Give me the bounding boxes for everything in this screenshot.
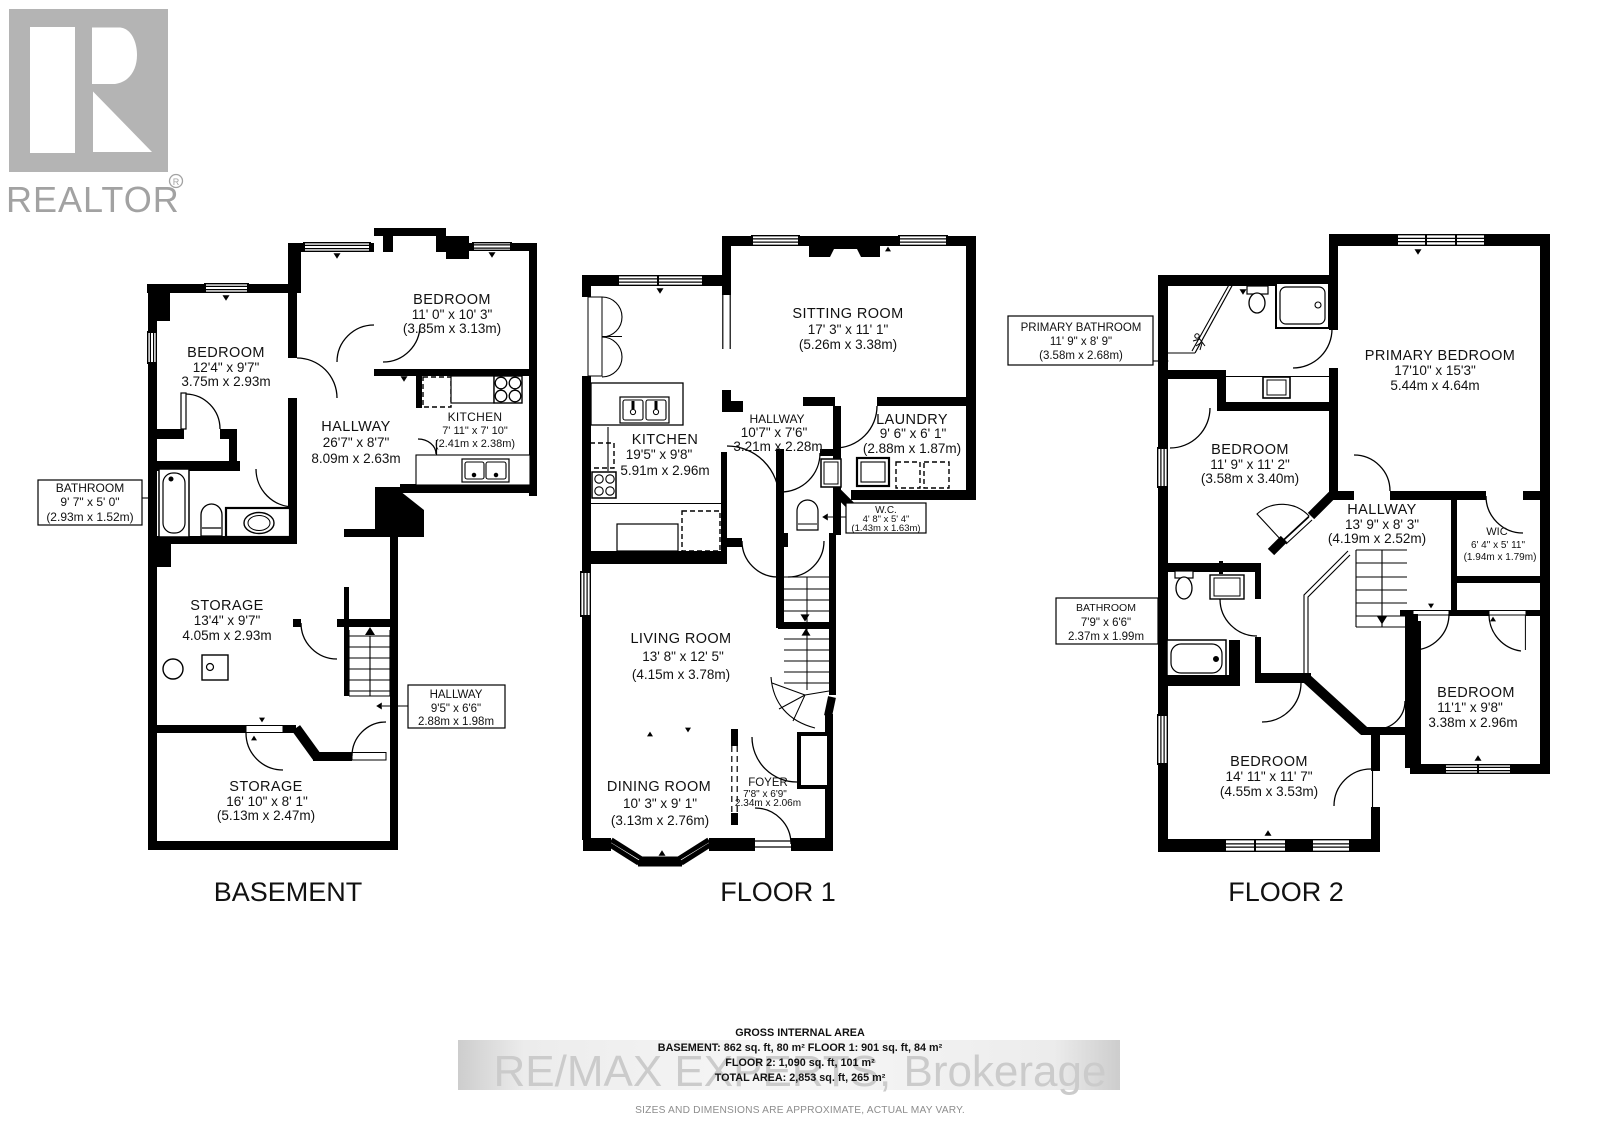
svg-text:FLOOR 2: 1,090 sq. ft, 101 m²: FLOOR 2: 1,090 sq. ft, 101 m² — [725, 1057, 875, 1069]
svg-text:HALLWAY: HALLWAY — [749, 412, 804, 426]
svg-text:11'1" x 9'8": 11'1" x 9'8" — [1437, 700, 1503, 715]
svg-text:(5.13m x 2.47m): (5.13m x 2.47m) — [217, 808, 315, 823]
svg-text:BATHROOM: BATHROOM — [1076, 602, 1136, 614]
svg-text:(3.35m x 3.13m): (3.35m x 3.13m) — [403, 321, 501, 336]
svg-text:SIZES AND DIMENSIONS ARE APPRO: SIZES AND DIMENSIONS ARE APPROXIMATE, AC… — [635, 1105, 965, 1116]
svg-text:2.88m x 1.98m: 2.88m x 1.98m — [418, 716, 494, 728]
svg-text:BEDROOM: BEDROOM — [1230, 754, 1308, 770]
svg-text:11' 9" x 8' 9": 11' 9" x 8' 9" — [1050, 336, 1112, 348]
svg-text:BASEMENT: 862 sq. ft, 80 m² FL: BASEMENT: 862 sq. ft, 80 m² FLOOR 1: 901… — [658, 1042, 943, 1054]
svg-text:PRIMARY BEDROOM: PRIMARY BEDROOM — [1365, 348, 1516, 364]
svg-text:10'7" x 7'6": 10'7" x 7'6" — [741, 425, 808, 440]
svg-text:(4.15m x 3.78m): (4.15m x 3.78m) — [632, 667, 730, 682]
svg-text:(1.43m x 1.63m): (1.43m x 1.63m) — [851, 523, 920, 534]
svg-text:14' 11" x 11' 7": 14' 11" x 11' 7" — [1225, 769, 1312, 784]
svg-text:FOYER: FOYER — [748, 777, 788, 789]
svg-text:STORAGE: STORAGE — [190, 598, 263, 614]
svg-text:16' 10" x 8' 1": 16' 10" x 8' 1" — [226, 794, 308, 809]
svg-text:HALLWAY: HALLWAY — [1347, 502, 1416, 518]
svg-text:FLOOR 2: FLOOR 2 — [1228, 877, 1344, 907]
svg-text:BEDROOM: BEDROOM — [413, 292, 491, 308]
svg-text:(2.93m x 1.52m): (2.93m x 1.52m) — [46, 510, 133, 524]
svg-text:9'5" x 6'6": 9'5" x 6'6" — [431, 703, 481, 715]
svg-text:3.38m x 2.96m: 3.38m x 2.96m — [1428, 715, 1517, 730]
svg-text:BEDROOM: BEDROOM — [1437, 685, 1515, 701]
svg-text:17'10" x 15'3": 17'10" x 15'3" — [1394, 363, 1476, 378]
svg-text:(2.88m x 1.87m): (2.88m x 1.87m) — [863, 441, 961, 456]
svg-text:7' 11" x 7' 10": 7' 11" x 7' 10" — [442, 425, 508, 437]
svg-text:11' 9" x 11' 2": 11' 9" x 11' 2" — [1210, 457, 1290, 472]
svg-text:12'4" x 9'7": 12'4" x 9'7" — [193, 360, 260, 375]
svg-text:KITCHEN: KITCHEN — [632, 432, 698, 448]
svg-text:7'9" x 6'6": 7'9" x 6'6" — [1081, 617, 1131, 629]
svg-text:BASEMENT: BASEMENT — [214, 877, 363, 907]
svg-text:17' 3" x 11' 1": 17' 3" x 11' 1" — [808, 322, 889, 337]
svg-text:19'5" x 9'8": 19'5" x 9'8" — [626, 447, 693, 462]
svg-text:R: R — [173, 177, 180, 187]
svg-text:(4.55m x 3.53m): (4.55m x 3.53m) — [1220, 784, 1318, 799]
svg-text:9' 6" x 6' 1": 9' 6" x 6' 1" — [880, 426, 947, 441]
svg-text:9' 7" x 5' 0": 9' 7" x 5' 0" — [60, 495, 119, 509]
svg-text:DINING ROOM: DINING ROOM — [607, 779, 711, 795]
svg-text:STORAGE: STORAGE — [229, 779, 302, 795]
svg-text:3.75m x 2.93m: 3.75m x 2.93m — [181, 374, 270, 389]
svg-text:13'4" x 9'7": 13'4" x 9'7" — [194, 613, 261, 628]
svg-text:TOTAL AREA: 2,853 sq. ft, 265: TOTAL AREA: 2,853 sq. ft, 265 m² — [715, 1072, 886, 1084]
svg-text:BATHROOM: BATHROOM — [56, 481, 124, 495]
svg-text:(3.58m x 3.40m): (3.58m x 3.40m) — [1201, 471, 1299, 486]
svg-text:(4.19m x 2.52m): (4.19m x 2.52m) — [1328, 531, 1426, 546]
svg-text:HALLWAY: HALLWAY — [321, 419, 390, 435]
svg-text:BEDROOM: BEDROOM — [187, 345, 265, 361]
svg-text:(5.26m x 3.38m): (5.26m x 3.38m) — [799, 337, 897, 352]
svg-text:BEDROOM: BEDROOM — [1211, 442, 1289, 458]
svg-text:6' 4" x 5' 11": 6' 4" x 5' 11" — [1471, 540, 1526, 551]
svg-text:(3.58m x 2.68m): (3.58m x 2.68m) — [1039, 350, 1123, 362]
svg-text:HALLWAY: HALLWAY — [430, 689, 483, 701]
svg-text:3.21m x 2.28m: 3.21m x 2.28m — [733, 439, 822, 454]
svg-text:FLOOR 1: FLOOR 1 — [720, 877, 836, 907]
svg-text:REALTOR: REALTOR — [6, 179, 180, 220]
svg-text:5.91m x 2.96m: 5.91m x 2.96m — [620, 463, 709, 478]
svg-text:(1.94m x 1.79m): (1.94m x 1.79m) — [1464, 552, 1537, 563]
svg-text:(2.41m x 2.38m): (2.41m x 2.38m) — [435, 438, 515, 450]
svg-text:(3.13m x 2.76m): (3.13m x 2.76m) — [611, 813, 709, 828]
svg-text:KITCHEN: KITCHEN — [448, 410, 503, 424]
svg-text:13' 9" x 8' 3": 13' 9" x 8' 3" — [1345, 517, 1419, 532]
svg-text:WIC: WIC — [1486, 526, 1507, 538]
svg-text:LIVING ROOM: LIVING ROOM — [630, 631, 731, 647]
svg-text:2.37m x 1.99m: 2.37m x 1.99m — [1068, 631, 1144, 643]
svg-text:10' 3" x 9' 1": 10' 3" x 9' 1" — [623, 796, 697, 811]
svg-text:13' 8" x 12' 5": 13' 8" x 12' 5" — [642, 649, 724, 664]
svg-text:26'7" x 8'7": 26'7" x 8'7" — [323, 435, 390, 450]
svg-text:8.09m x 2.63m: 8.09m x 2.63m — [311, 451, 400, 466]
svg-text:GROSS INTERNAL AREA: GROSS INTERNAL AREA — [735, 1027, 865, 1039]
svg-text:5.44m x 4.64m: 5.44m x 4.64m — [1390, 378, 1479, 393]
svg-text:SITTING ROOM: SITTING ROOM — [792, 306, 903, 322]
svg-text:PRIMARY BATHROOM: PRIMARY BATHROOM — [1021, 322, 1142, 334]
svg-text:11' 0" x 10' 3": 11' 0" x 10' 3" — [412, 307, 493, 322]
svg-text:2.34m x 2.06m: 2.34m x 2.06m — [735, 798, 801, 809]
svg-text:4.05m x 2.93m: 4.05m x 2.93m — [182, 628, 271, 643]
